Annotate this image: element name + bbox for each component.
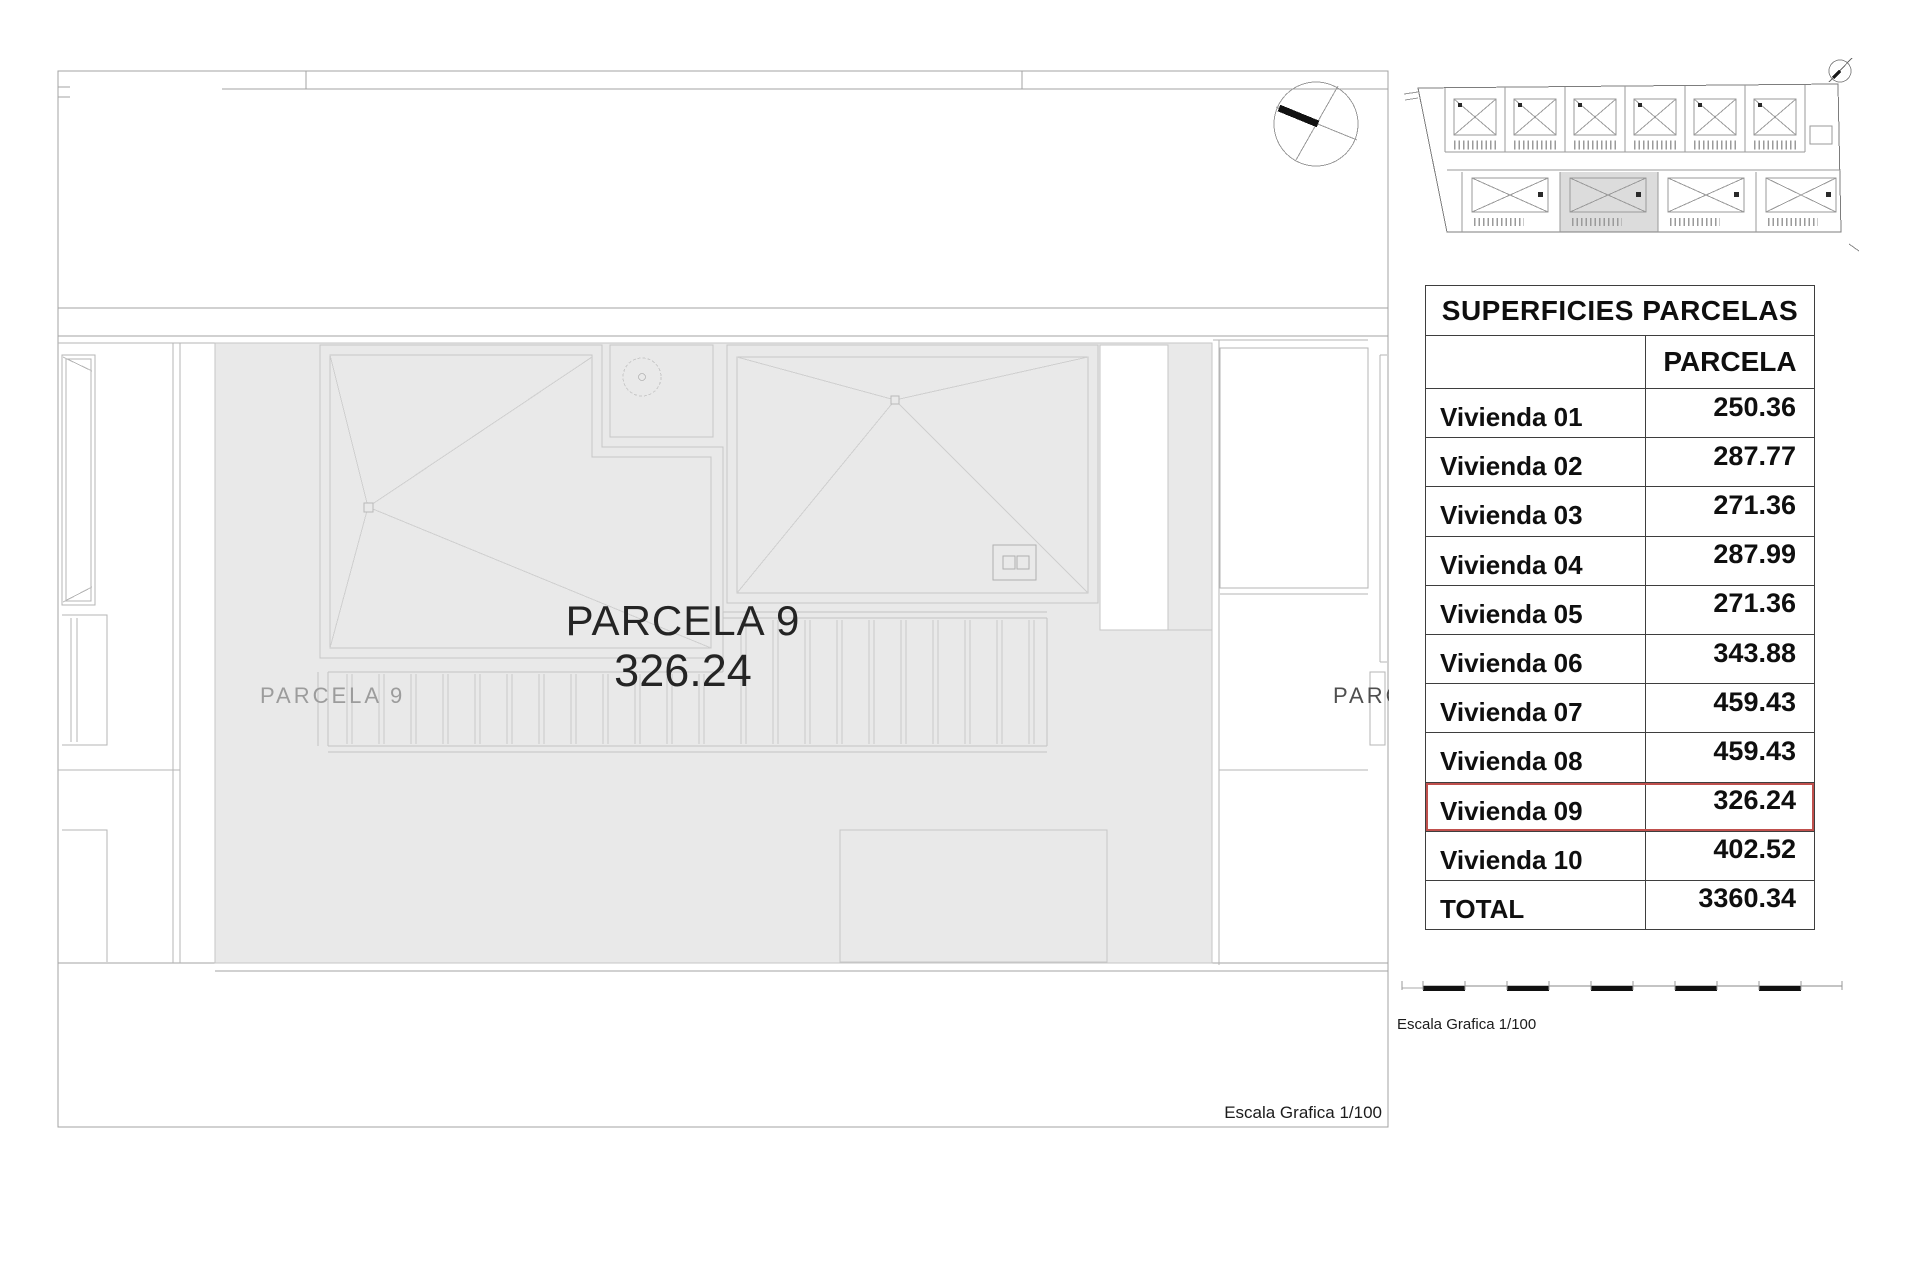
row-label: Vivienda 02 [1426, 438, 1646, 486]
row-value: 3360.34 [1646, 881, 1814, 929]
row-value: 402.52 [1646, 832, 1814, 880]
areas-table: SUPERFICIES PARCELAS PARCELA Vivienda 01… [1425, 285, 1815, 930]
parcel-title: PARCELA 9 [497, 597, 869, 645]
row-value: 459.43 [1646, 684, 1814, 732]
mini-top-units [1454, 99, 1832, 145]
mini-site-plan [1404, 58, 1859, 251]
parcel-area-value: 326.24 [497, 645, 869, 697]
right-parcel-label-clipped: PARC [1333, 683, 1389, 709]
row-value: 326.24 [1646, 783, 1814, 831]
table-title: SUPERFICIES PARCELAS [1426, 286, 1814, 336]
table-row: Vivienda 05 271.36 [1426, 586, 1814, 635]
row-label: Vivienda 10 [1426, 832, 1646, 880]
table-row-highlighted: Vivienda 09 326.24 [1426, 783, 1814, 832]
site-plan-sheet: PARCELA 9 326.24 PARCELA 9 PARC Escala G… [0, 0, 1920, 1280]
table-subheader-empty-cell [1426, 336, 1646, 388]
row-value: 250.36 [1646, 389, 1814, 437]
row-label: Vivienda 09 [1426, 783, 1646, 831]
skylight-icon [993, 545, 1036, 580]
row-value: 271.36 [1646, 586, 1814, 634]
row-value: 287.77 [1646, 438, 1814, 486]
side-scale-caption: Escala Grafica 1/100 [1397, 1016, 1536, 1033]
table-row: Vivienda 01 250.36 [1426, 389, 1814, 438]
row-label: Vivienda 08 [1426, 733, 1646, 781]
table-row: Vivienda 02 287.77 [1426, 438, 1814, 487]
left-neighbour-parcel [58, 343, 215, 963]
table-row: Vivienda 03 271.36 [1426, 487, 1814, 536]
scale-bar [1402, 981, 1842, 991]
row-label: Vivienda 05 [1426, 586, 1646, 634]
row-value: 459.43 [1646, 733, 1814, 781]
row-value: 343.88 [1646, 635, 1814, 683]
side-yard-strip [1100, 345, 1168, 630]
row-label: Vivienda 04 [1426, 537, 1646, 585]
table-column-header: PARCELA [1646, 336, 1814, 388]
row-label: Vivienda 07 [1426, 684, 1646, 732]
north-arrow-icon [1274, 82, 1358, 166]
row-value: 287.99 [1646, 537, 1814, 585]
row-label: TOTAL [1426, 881, 1646, 929]
table-row: Vivienda 10 402.52 [1426, 832, 1814, 881]
table-row-total: TOTAL 3360.34 [1426, 881, 1814, 929]
mini-north-arrow-icon [1829, 58, 1852, 82]
parcel-callout: PARCELA 9 326.24 [497, 597, 869, 697]
table-row: Vivienda 06 343.88 [1426, 635, 1814, 684]
main-scale-caption: Escala Grafica 1/100 [1082, 1103, 1382, 1123]
row-label: Vivienda 01 [1426, 389, 1646, 437]
row-label: Vivienda 03 [1426, 487, 1646, 535]
table-subheader: PARCELA [1426, 336, 1814, 389]
right-neighbour-parcel [1213, 340, 1387, 965]
table-row: Vivienda 08 459.43 [1426, 733, 1814, 782]
table-row: Vivienda 04 287.99 [1426, 537, 1814, 586]
row-value: 271.36 [1646, 487, 1814, 535]
row-label: Vivienda 06 [1426, 635, 1646, 683]
left-parcel-label: PARCELA 9 [260, 683, 405, 709]
table-row: Vivienda 07 459.43 [1426, 684, 1814, 733]
